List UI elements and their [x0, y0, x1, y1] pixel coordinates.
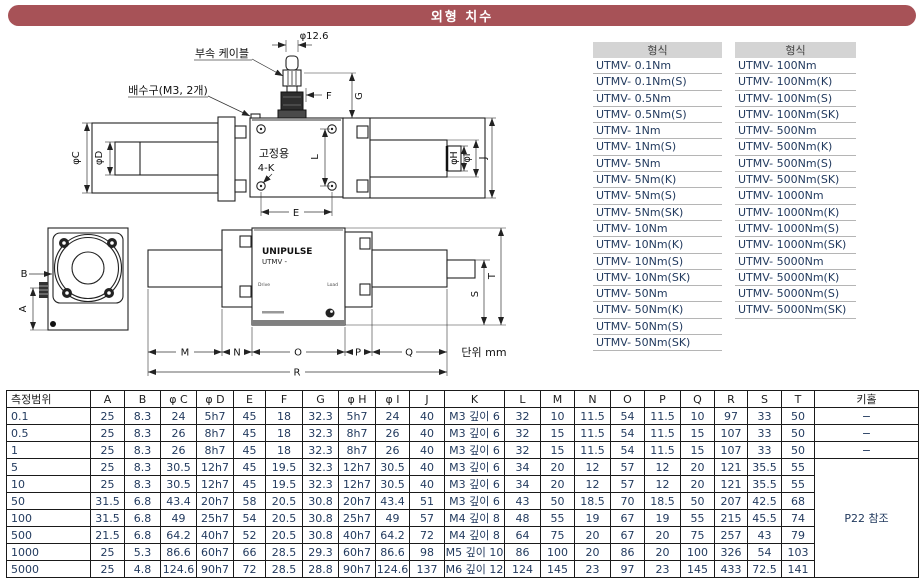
value-cell: 19.5 [266, 476, 303, 493]
value-cell: 26 [161, 442, 197, 459]
value-cell: 8.3 [125, 476, 161, 493]
value-cell: 50 [782, 442, 815, 459]
value-cell: 124.6 [161, 561, 197, 578]
page-title-text: 외형 치수 [431, 6, 493, 25]
value-cell: 6.8 [125, 510, 161, 527]
value-cell: M3 깊이 6 [445, 476, 505, 493]
model-list-item: UTMV- 1000Nm(SK) [735, 237, 856, 253]
value-cell: 57 [611, 476, 645, 493]
value-cell: 10 [681, 408, 715, 425]
model-list-item: UTMV- 0.5Nm [593, 91, 722, 107]
column-header: K [445, 391, 505, 408]
cable-callout-label: 부속 케이블 [195, 47, 249, 60]
value-cell: 103 [782, 544, 815, 561]
value-cell: 58 [234, 493, 266, 510]
side-view: UNIPULSE UTMV - Drive Load S T [148, 228, 507, 379]
value-cell: 42.5 [748, 493, 782, 510]
value-cell: 40h7 [197, 527, 234, 544]
table-row: 1000255.386.660h76628.529.360h786.698M5 … [7, 544, 919, 561]
value-cell: 60h7 [197, 544, 234, 561]
dim-label-b: B [21, 269, 28, 280]
value-cell: 11.5 [575, 442, 611, 459]
model-list-item: UTMV- 0.1Nm(S) [593, 74, 722, 90]
value-cell: 66 [234, 544, 266, 561]
value-cell: 19 [575, 510, 611, 527]
model-list-item: UTMV- 1000Nm(K) [735, 205, 856, 221]
column-header: Q [681, 391, 715, 408]
column-header: N [575, 391, 611, 408]
value-cell: 45 [234, 442, 266, 459]
value-cell: 45 [234, 408, 266, 425]
value-cell: 32 [505, 408, 541, 425]
column-header: 측정범위 [7, 391, 91, 408]
column-header: F [266, 391, 303, 408]
dim-label-e: E [293, 208, 299, 219]
value-cell: 25h7 [339, 510, 376, 527]
column-header: T [782, 391, 815, 408]
value-cell: 215 [715, 510, 748, 527]
value-cell: 26 [161, 425, 197, 442]
model-list-item: UTMV- 1Nm(S) [593, 139, 722, 155]
model-list-header: 형식 [593, 42, 722, 58]
value-cell: 12 [645, 459, 681, 476]
value-cell: 25 [91, 561, 125, 578]
value-cell: 55 [541, 510, 575, 527]
column-header: O [611, 391, 645, 408]
range-cell: 500 [7, 527, 91, 544]
model-list-item: UTMV- 500Nm(K) [735, 139, 856, 155]
value-cell: 30.8 [303, 493, 339, 510]
model-list-item: UTMV- 1Nm [593, 123, 722, 139]
value-cell: 35.5 [748, 459, 782, 476]
value-cell: 43 [748, 527, 782, 544]
value-cell: 100 [681, 544, 715, 561]
dim-label-l: L [310, 154, 321, 160]
value-cell: 32.3 [303, 459, 339, 476]
dim-label-p: P [355, 348, 361, 359]
value-cell: 25 [91, 442, 125, 459]
value-cell: 31.5 [91, 493, 125, 510]
value-cell: 25 [91, 544, 125, 561]
value-cell: 64.2 [161, 527, 197, 544]
model-list-item: UTMV- 10Nm(S) [593, 254, 722, 270]
value-cell: 33 [748, 425, 782, 442]
value-cell: 86.6 [161, 544, 197, 561]
model-list-large-capacity: 형식 UTMV- 100NmUTMV- 100Nm(K)UTMV- 100Nm(… [735, 42, 856, 319]
drive-side-label: Drive [258, 282, 270, 288]
model-list-item: UTMV- 100Nm(K) [735, 74, 856, 90]
model-list-item: UTMV- 1000Nm(S) [735, 221, 856, 237]
column-header: φ D [197, 391, 234, 408]
value-cell: 28.5 [266, 561, 303, 578]
value-cell: 28.8 [303, 561, 339, 578]
value-cell: 57 [611, 459, 645, 476]
value-cell: 75 [541, 527, 575, 544]
column-header: φ C [161, 391, 197, 408]
value-cell: 20 [541, 476, 575, 493]
fine-print-bar [262, 311, 284, 314]
value-cell: 79 [782, 527, 815, 544]
dim-label-phid: φD [94, 151, 105, 166]
value-cell: M6 깊이 12 [445, 561, 505, 578]
model-list-item: UTMV- 5000Nm [735, 254, 856, 270]
dim-label-a: A [18, 305, 29, 312]
page-title: 외형 치수 [8, 5, 916, 26]
value-cell: M3 깊이 6 [445, 493, 505, 510]
value-cell: 124 [505, 561, 541, 578]
value-cell: 43.4 [376, 493, 410, 510]
value-cell: 8h7 [339, 442, 376, 459]
value-cell: 54 [234, 510, 266, 527]
model-list-item: UTMV- 10Nm [593, 221, 722, 237]
value-cell: 26 [376, 442, 410, 459]
value-cell: 86.6 [376, 544, 410, 561]
value-cell: 20h7 [197, 493, 234, 510]
value-cell: 20h7 [339, 493, 376, 510]
column-header: A [91, 391, 125, 408]
load-side-label: Load [327, 282, 338, 288]
value-cell: 33 [748, 408, 782, 425]
value-cell: 50 [541, 493, 575, 510]
value-cell: M4 깊이 8 [445, 527, 505, 544]
value-cell: 20.5 [266, 527, 303, 544]
value-cell: 45 [234, 476, 266, 493]
value-cell: 90h7 [197, 561, 234, 578]
value-cell: 32.3 [303, 476, 339, 493]
range-cell: 1000 [7, 544, 91, 561]
value-cell: 15 [681, 442, 715, 459]
value-cell: 30.8 [303, 527, 339, 544]
value-cell: 12h7 [339, 459, 376, 476]
dim-label-j: J [478, 157, 489, 161]
value-cell: 86 [505, 544, 541, 561]
model-list-item: UTMV- 1000Nm [735, 188, 856, 204]
value-cell: 50 [782, 408, 815, 425]
value-cell: 49 [376, 510, 410, 527]
dimensions-table: 측정범위ABφ Cφ DEFGφ Hφ IJKLMNOPQRST키홀 0.125… [6, 390, 919, 578]
value-cell: 20 [645, 527, 681, 544]
value-cell: M3 깊이 6 [445, 425, 505, 442]
table-row: 5000254.8124.690h77228.528.890h7124.6137… [7, 561, 919, 578]
value-cell: 55 [681, 510, 715, 527]
value-cell: 12h7 [197, 459, 234, 476]
model-list-item: UTMV- 0.5Nm(S) [593, 107, 722, 123]
value-cell: 54 [611, 442, 645, 459]
value-cell: 72 [410, 527, 445, 544]
value-cell: M3 깊이 6 [445, 459, 505, 476]
value-cell: 257 [715, 527, 748, 544]
value-cell: 30.8 [303, 510, 339, 527]
column-header: 키홀 [815, 391, 919, 408]
top-view: φ12.6 부속 케이블 배수구(M3, 2개) 고정용 4-K F G [71, 31, 496, 219]
dim-label-q: Q [405, 348, 413, 359]
model-list-item: UTMV- 5000Nm(K) [735, 270, 856, 286]
value-cell: 15 [681, 425, 715, 442]
value-cell: 12h7 [339, 476, 376, 493]
value-cell: 72 [234, 561, 266, 578]
fixing-label-2: 4-K [258, 163, 275, 174]
value-cell: 107 [715, 425, 748, 442]
value-cell: 75 [681, 527, 715, 544]
value-cell: 11.5 [575, 408, 611, 425]
value-cell: 40 [410, 442, 445, 459]
value-cell: 12 [575, 459, 611, 476]
value-cell: 124.6 [376, 561, 410, 578]
model-list-item: UTMV- 100Nm(S) [735, 91, 856, 107]
brand-logo-text: UNIPULSE [262, 247, 312, 257]
model-list-item: UTMV- 10Nm(SK) [593, 270, 722, 286]
value-cell: 40 [410, 476, 445, 493]
keyhole-cell: − [815, 442, 919, 459]
model-list-item: UTMV- 5000Nm(SK) [735, 302, 856, 318]
value-cell: 43.4 [161, 493, 197, 510]
table-row: 5258.330.512h74519.532.312h730.540M3 깊이 … [7, 459, 919, 476]
column-header: S [748, 391, 782, 408]
dim-label-f: F [326, 91, 332, 102]
range-cell: 10 [7, 476, 91, 493]
value-cell: 8.3 [125, 442, 161, 459]
value-cell: 24 [161, 408, 197, 425]
model-list-item: UTMV- 50Nm(K) [593, 302, 722, 318]
value-cell: 40 [410, 425, 445, 442]
value-cell: 34 [505, 459, 541, 476]
value-cell: 20 [575, 544, 611, 561]
table-row: 0.1258.3245h7451832.35h72440M3 깊이 632101… [7, 408, 919, 425]
range-cell: 5000 [7, 561, 91, 578]
value-cell: 8.3 [125, 459, 161, 476]
value-cell: 43 [505, 493, 541, 510]
value-cell: 25 [91, 425, 125, 442]
model-list-rows: UTMV- 100NmUTMV- 100Nm(K)UTMV- 100Nm(S)U… [735, 58, 856, 319]
table-row: 10258.330.512h74519.532.312h730.540M3 깊이… [7, 476, 919, 493]
value-cell: 97 [611, 561, 645, 578]
column-header: L [505, 391, 541, 408]
value-cell: M5 깊이 10 [445, 544, 505, 561]
range-cell: 0.5 [7, 425, 91, 442]
value-cell: 50 [681, 493, 715, 510]
dim-label-g: G [354, 92, 365, 100]
value-cell: 12 [575, 476, 611, 493]
table-row: 0.5258.3268h7451832.38h72640M3 깊이 632151… [7, 425, 919, 442]
value-cell: 433 [715, 561, 748, 578]
value-cell: 20.5 [266, 510, 303, 527]
model-list-item: UTMV- 5Nm [593, 156, 722, 172]
value-cell: 21.5 [91, 527, 125, 544]
value-cell: 12 [645, 476, 681, 493]
value-cell: 6.8 [125, 493, 161, 510]
model-list-item: UTMV- 500Nm [735, 123, 856, 139]
value-cell: 5.3 [125, 544, 161, 561]
keyhole-cell: − [815, 408, 919, 425]
value-cell: 54 [611, 425, 645, 442]
keyhole-note-cell: P22 참조 [815, 459, 919, 578]
value-cell: 8.3 [125, 425, 161, 442]
value-cell: 8h7 [197, 425, 234, 442]
value-cell: 11.5 [645, 408, 681, 425]
value-cell: 100 [541, 544, 575, 561]
value-cell: 54 [748, 544, 782, 561]
cable-dia-label: φ12.6 [300, 31, 329, 42]
value-cell: 97 [715, 408, 748, 425]
value-cell: 29.3 [303, 544, 339, 561]
value-cell: 64.2 [376, 527, 410, 544]
model-list-item: UTMV- 10Nm(K) [593, 237, 722, 253]
model-list-item: UTMV- 50Nm(S) [593, 319, 722, 335]
model-list-item: UTMV- 5Nm(SK) [593, 205, 722, 221]
model-list-item: UTMV- 50Nm [593, 286, 722, 302]
value-cell: 48 [505, 510, 541, 527]
value-cell: 18 [266, 442, 303, 459]
value-cell: 86 [611, 544, 645, 561]
value-cell: 137 [410, 561, 445, 578]
value-cell: 23 [575, 561, 611, 578]
range-cell: 1 [7, 442, 91, 459]
outline-drawing: φ12.6 부속 케이블 배수구(M3, 2개) 고정용 4-K F G [0, 26, 590, 388]
dim-label-s: S [470, 291, 481, 297]
value-cell: 23 [645, 561, 681, 578]
value-cell: 20 [681, 459, 715, 476]
dim-label-phic: φC [71, 151, 82, 165]
value-cell: 67 [611, 510, 645, 527]
keyhole-cell: − [815, 425, 919, 442]
value-cell: 20 [681, 476, 715, 493]
value-cell: 72.5 [748, 561, 782, 578]
value-cell: 10 [541, 408, 575, 425]
value-cell: 67 [611, 527, 645, 544]
unit-label: 단위 mm [461, 346, 506, 359]
value-cell: 11.5 [645, 442, 681, 459]
datasheet-page: 외형 치수 [0, 0, 924, 579]
value-cell: 32 [505, 442, 541, 459]
dim-label-r: R [294, 368, 301, 379]
model-list-item: UTMV- 100Nm(SK) [735, 107, 856, 123]
value-cell: 12h7 [197, 476, 234, 493]
value-cell: 30.5 [161, 459, 197, 476]
value-cell: M3 깊이 6 [445, 408, 505, 425]
value-cell: 145 [681, 561, 715, 578]
unipulse-logo-mark [326, 309, 335, 318]
dim-label-phih: φH [449, 151, 460, 164]
value-cell: 33 [748, 442, 782, 459]
value-cell: 24 [376, 408, 410, 425]
column-header: J [410, 391, 445, 408]
value-cell: M4 깊이 8 [445, 510, 505, 527]
model-list-item: UTMV- 0.1Nm [593, 58, 722, 74]
dim-label-o: O [294, 348, 302, 359]
value-cell: 6.8 [125, 527, 161, 544]
value-cell: 19 [645, 510, 681, 527]
value-cell: 20 [645, 544, 681, 561]
value-cell: 90h7 [339, 561, 376, 578]
model-list-header: 형식 [735, 42, 856, 58]
value-cell: 207 [715, 493, 748, 510]
value-cell: 34 [505, 476, 541, 493]
value-cell: 45.5 [748, 510, 782, 527]
value-cell: 32.3 [303, 442, 339, 459]
value-cell: 11.5 [645, 425, 681, 442]
value-cell: 60h7 [339, 544, 376, 561]
value-cell: 30.5 [161, 476, 197, 493]
model-text: UTMV - [262, 258, 287, 266]
value-cell: 32.3 [303, 425, 339, 442]
column-header: G [303, 391, 339, 408]
value-cell: 20.5 [266, 493, 303, 510]
value-cell: 51 [410, 493, 445, 510]
value-cell: 25 [91, 476, 125, 493]
value-cell: 20 [541, 459, 575, 476]
value-cell: 8h7 [339, 425, 376, 442]
value-cell: 30.5 [376, 459, 410, 476]
value-cell: 74 [782, 510, 815, 527]
column-header: M [541, 391, 575, 408]
value-cell: 40 [410, 459, 445, 476]
model-list-item: UTMV- 500Nm(S) [735, 156, 856, 172]
value-cell: 50 [782, 425, 815, 442]
value-cell: 18 [266, 408, 303, 425]
value-cell: 52 [234, 527, 266, 544]
range-cell: 100 [7, 510, 91, 527]
value-cell: 18 [266, 425, 303, 442]
dim-label-n: N [233, 348, 240, 359]
value-cell: 8.3 [125, 408, 161, 425]
value-cell: 25 [91, 408, 125, 425]
value-cell: 57 [410, 510, 445, 527]
value-cell: 15 [541, 425, 575, 442]
column-header: φ H [339, 391, 376, 408]
value-cell: 54 [611, 408, 645, 425]
fixing-label-1: 고정용 [259, 147, 289, 160]
value-cell: 64 [505, 527, 541, 544]
value-cell: 145 [541, 561, 575, 578]
range-cell: 50 [7, 493, 91, 510]
cable-connector [278, 56, 306, 118]
column-header: E [234, 391, 266, 408]
value-cell: 45 [234, 425, 266, 442]
column-header: P [645, 391, 681, 408]
dim-label-t: T [487, 272, 498, 280]
value-cell: 4.8 [125, 561, 161, 578]
table-row: 10031.56.84925h75420.530.825h74957M4 깊이 … [7, 510, 919, 527]
value-cell: 25h7 [197, 510, 234, 527]
model-list-item: UTMV- 50Nm(SK) [593, 335, 722, 351]
table-header-row: 측정범위ABφ Cφ DEFGφ Hφ IJKLMNOPQRST키홀 [7, 391, 919, 408]
value-cell: M3 깊이 6 [445, 442, 505, 459]
value-cell: 35.5 [748, 476, 782, 493]
value-cell: 49 [161, 510, 197, 527]
value-cell: 26 [376, 425, 410, 442]
value-cell: 121 [715, 459, 748, 476]
value-cell: 5h7 [339, 408, 376, 425]
model-list-item: UTMV- 5Nm(K) [593, 172, 722, 188]
table-row: 50021.56.864.240h75220.530.840h764.272M4… [7, 527, 919, 544]
value-cell: 107 [715, 442, 748, 459]
model-list-item: UTMV- 5000Nm(S) [735, 286, 856, 302]
dim-label-m: M [181, 348, 190, 359]
value-cell: 98 [410, 544, 445, 561]
model-list-item: UTMV- 100Nm [735, 58, 856, 74]
value-cell: 8h7 [197, 442, 234, 459]
value-cell: 55 [782, 476, 815, 493]
drain-callout-label: 배수구(M3, 2개) [128, 84, 208, 97]
value-cell: 30.5 [376, 476, 410, 493]
value-cell: 18.5 [575, 493, 611, 510]
value-cell: 11.5 [575, 425, 611, 442]
range-cell: 0.1 [7, 408, 91, 425]
model-list-rows: UTMV- 0.1NmUTMV- 0.1Nm(S)UTMV- 0.5NmUTMV… [593, 58, 722, 351]
column-header: φ I [376, 391, 410, 408]
value-cell: 70 [611, 493, 645, 510]
value-cell: 19.5 [266, 459, 303, 476]
